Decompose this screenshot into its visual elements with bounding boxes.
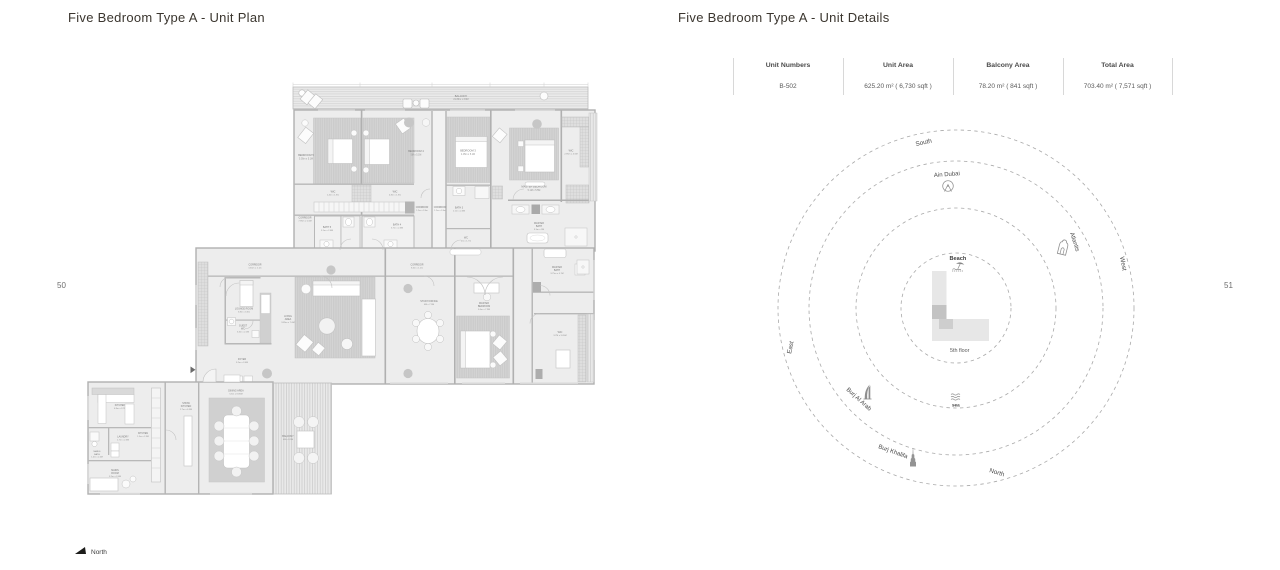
svg-text:KITCHEN: KITCHEN — [138, 433, 148, 435]
svg-text:2m x 1.7m: 2m x 1.7m — [461, 241, 471, 243]
svg-text:CORRIDOR: CORRIDOR — [434, 207, 447, 209]
svg-text:4M x 8.5M: 4M x 8.5M — [283, 439, 293, 441]
svg-text:CORRIDOR: CORRIDOR — [410, 264, 423, 267]
svg-text:1.2m x 3.4m: 1.2m x 3.4m — [434, 210, 446, 212]
svg-text:BATH: BATH — [554, 269, 560, 272]
svg-text:ROOM: ROOM — [111, 472, 118, 475]
svg-text:3.75m x 4.7M: 3.75m x 4.7M — [550, 273, 563, 275]
svg-text:1.4m x 2.4M: 1.4m x 2.4M — [91, 457, 103, 459]
svg-text:CORRIDOR: CORRIDOR — [248, 264, 261, 267]
svg-text:Atlantis: Atlantis — [1068, 232, 1080, 253]
svg-text:WIC: WIC — [558, 331, 563, 334]
svg-text:3.3m x 2.1M: 3.3m x 2.1M — [237, 332, 249, 334]
svg-text:WIC: WIC — [569, 150, 574, 153]
svg-text:BEDROOM 4: BEDROOM 4 — [408, 149, 424, 153]
svg-text:BALCONY: BALCONY — [282, 435, 294, 438]
svg-text:9.85m x 7.6M: 9.85m x 7.6M — [281, 322, 294, 324]
svg-text:2.1m x 2.6M: 2.1m x 2.6M — [453, 211, 465, 213]
svg-text:LAUNDRY: LAUNDRY — [117, 436, 129, 439]
svg-text:East: East — [786, 340, 796, 354]
svg-text:DINING AREA: DINING AREA — [228, 390, 244, 393]
svg-text:3.7M x 3.05M: 3.7M x 3.05M — [553, 335, 566, 337]
svg-text:CORRIDOR: CORRIDOR — [416, 207, 429, 209]
svg-text:5M x 5.1M: 5M x 5.1M — [411, 155, 422, 157]
svg-text:BATH 3: BATH 3 — [455, 207, 464, 210]
svg-text:Ain Dubai: Ain Dubai — [934, 171, 960, 179]
svg-text:Burj Khalifa: Burj Khalifa — [877, 444, 909, 460]
svg-text:FOYER: FOYER — [238, 358, 247, 361]
svg-text:4M x 7.5M: 4M x 7.5M — [424, 304, 434, 306]
svg-text:4.8m x 1.9m: 4.8m x 1.9m — [389, 195, 401, 197]
svg-text:Beach: Beach — [950, 256, 967, 262]
svg-text:4.05m x 5.1M: 4.05m x 5.1M — [461, 154, 475, 156]
svg-text:5th floor: 5th floor — [950, 348, 970, 354]
svg-text:2.95m x 4.5M: 2.95m x 4.5M — [564, 154, 577, 156]
svg-text:3.7m x 2.6M: 3.7m x 2.6M — [391, 228, 403, 230]
svg-text:2.7m x 6.5M: 2.7m x 6.5M — [180, 409, 192, 411]
svg-text:sea: sea — [952, 403, 960, 408]
svg-text:1.9m x 2.3M: 1.9m x 2.3M — [137, 436, 149, 438]
svg-text:7.95m x 0.6M: 7.95m x 0.6M — [298, 221, 311, 223]
svg-text:BATH: BATH — [536, 225, 542, 228]
svg-text:BATH 4: BATH 4 — [393, 224, 402, 227]
svg-text:WC: WC — [464, 237, 468, 240]
svg-text:3.1m x 2.6M: 3.1m x 2.6M — [321, 230, 333, 232]
svg-text:KITCHEN: KITCHEN — [181, 405, 192, 408]
svg-text:5.6m x 7.9M: 5.6m x 7.9M — [478, 309, 490, 311]
svg-text:WIC: WIC — [331, 191, 336, 194]
svg-text:South: South — [915, 138, 933, 148]
svg-text:21.80m x 3.6M: 21.80m x 3.6M — [453, 99, 468, 101]
svg-text:North: North — [988, 467, 1005, 478]
svg-text:WIC: WIC — [393, 191, 398, 194]
svg-text:STUDY/OFFICE: STUDY/OFFICE — [420, 300, 438, 303]
svg-text:MAIDS: MAIDS — [94, 450, 101, 453]
svg-text:13.6m x 2.1m: 13.6m x 2.1m — [248, 268, 261, 270]
svg-text:2.4m x 1.9m: 2.4m x 1.9m — [327, 195, 339, 197]
svg-text:5.05m x 5.1M: 5.05m x 5.1M — [299, 159, 313, 161]
svg-text:Burj Al Arab: Burj Al Arab — [845, 387, 873, 413]
svg-text:CORRIDOR: CORRIDOR — [298, 217, 311, 220]
svg-text:5.5m x 8.85M: 5.5m x 8.85M — [229, 394, 242, 396]
svg-text:BEDROOM 3: BEDROOM 3 — [460, 149, 476, 153]
svg-text:5.2m x 3.4M: 5.2m x 3.4M — [236, 362, 248, 364]
svg-text:BATH 5: BATH 5 — [323, 226, 332, 229]
svg-text:BALCONY: BALCONY — [455, 94, 468, 98]
svg-text:KITCHEN: KITCHEN — [115, 404, 126, 407]
svg-text:1.7m x 2.6M: 1.7m x 2.6M — [117, 440, 129, 442]
svg-text:1.2m x 3.4m: 1.2m x 3.4m — [416, 210, 428, 212]
svg-text:BEDROOM 5: BEDROOM 5 — [298, 153, 314, 157]
svg-text:BATH: BATH — [94, 453, 100, 456]
svg-text:BEDROOM: BEDROOM — [478, 305, 490, 308]
svg-text:North: North — [91, 549, 107, 556]
svg-text:3.5m x 5M: 3.5m x 5M — [534, 229, 544, 231]
svg-text:5.1M x 5.5M: 5.1M x 5.5M — [528, 190, 541, 192]
svg-text:LOUNGE ROOM: LOUNGE ROOM — [235, 308, 253, 311]
svg-text:AREA: AREA — [285, 318, 292, 321]
svg-text:West: West — [1118, 256, 1128, 272]
svg-text:9.4m x 1.2m: 9.4m x 1.2m — [411, 268, 423, 270]
svg-text:3.8m x 3.6m: 3.8m x 3.6m — [238, 312, 250, 314]
svg-text:WC: WC — [241, 328, 245, 331]
svg-text:4.8m x 3.7M: 4.8m x 3.7M — [114, 408, 126, 410]
